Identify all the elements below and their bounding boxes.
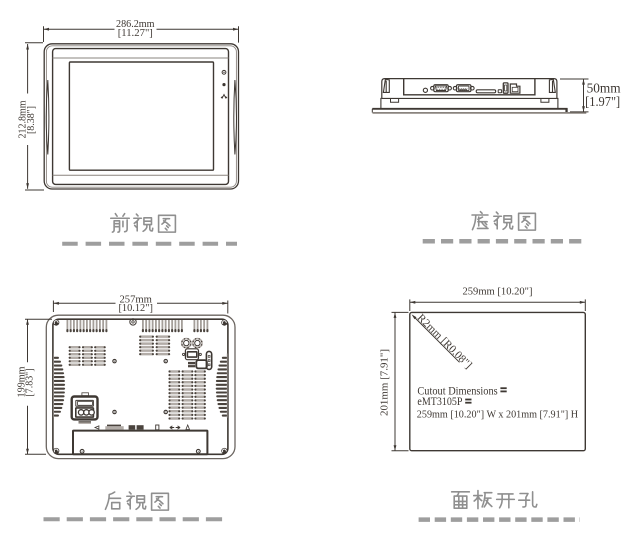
svg-text:[10.12"]: [10.12"] xyxy=(118,302,153,314)
svg-text:[7.83"]: [7.83"] xyxy=(24,369,36,397)
svg-text:[11.27"]: [11.27"] xyxy=(118,27,153,39)
svg-text:201mm [7.91"]: 201mm [7.91"] xyxy=(378,349,390,416)
svg-text:eMT3105P: eMT3105P xyxy=(417,395,462,408)
svg-text:[8.38"]: [8.38"] xyxy=(25,106,37,134)
svg-text:R2mm [R0.08"]: R2mm [R0.08"] xyxy=(415,312,474,371)
svg-text:[1.97"]: [1.97"] xyxy=(585,95,620,110)
svg-text:259mm [10.20"] W x 201mm [7.91: 259mm [10.20"] W x 201mm [7.91"] H xyxy=(417,408,578,420)
svg-text:259mm [10.20"]: 259mm [10.20"] xyxy=(463,286,533,298)
